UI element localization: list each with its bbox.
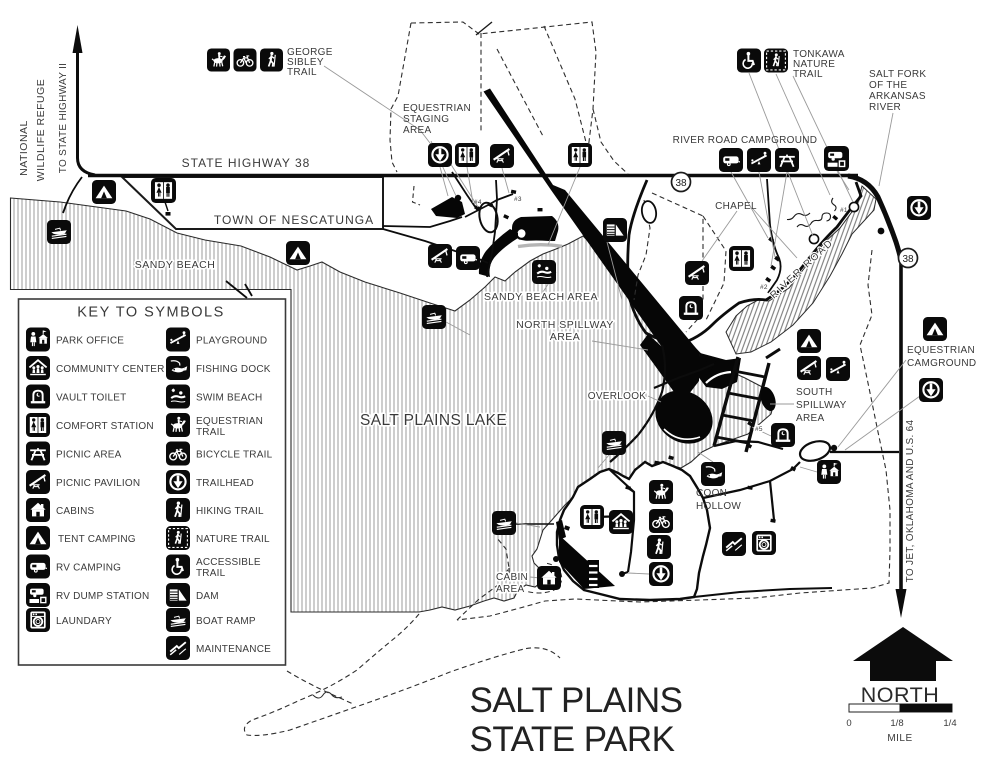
svg-text:COMMUNITY CENTER: COMMUNITY CENTER — [56, 364, 165, 375]
svg-text:PICNIC AREA: PICNIC AREA — [56, 450, 122, 461]
svg-text:SANDY BEACH: SANDY BEACH — [135, 259, 216, 271]
svg-text:SOUTH: SOUTH — [796, 387, 833, 398]
svg-text:MILE: MILE — [887, 733, 912, 744]
svg-text:CHAPEL: CHAPEL — [715, 201, 757, 212]
svg-text:SALT PLAINS LAKE: SALT PLAINS LAKE — [360, 412, 507, 429]
svg-text:MAINTENANCE: MAINTENANCE — [196, 644, 271, 655]
svg-text:#3: #3 — [514, 196, 522, 203]
svg-text:STAGING: STAGING — [403, 114, 449, 125]
svg-text:ARKANSAS: ARKANSAS — [869, 91, 926, 102]
svg-text:AREA: AREA — [403, 125, 431, 136]
svg-text:1/4: 1/4 — [943, 718, 956, 729]
svg-text:LAUNDARY: LAUNDARY — [56, 616, 112, 627]
svg-text:NORTH SPILLWAY: NORTH SPILLWAY — [516, 319, 614, 331]
svg-text:AREA: AREA — [550, 331, 581, 343]
svg-text:PICNIC PAVILION: PICNIC PAVILION — [56, 478, 140, 489]
svg-text:AREA: AREA — [796, 413, 824, 424]
svg-text:1/8: 1/8 — [890, 718, 903, 729]
svg-text:TO STATE HIGHWAY II: TO STATE HIGHWAY II — [58, 63, 69, 174]
svg-text:BICYCLE TRAIL: BICYCLE TRAIL — [196, 450, 273, 461]
svg-text:CABIN: CABIN — [496, 572, 528, 583]
svg-text:#5: #5 — [755, 426, 763, 433]
svg-text:RIVER ROAD CAMPGROUND: RIVER ROAD CAMPGROUND — [673, 135, 818, 146]
svg-text:SALT PLAINS: SALT PLAINS — [469, 681, 682, 720]
svg-text:RV DUMP STATION: RV DUMP STATION — [56, 591, 149, 602]
svg-text:FISHING DOCK: FISHING DOCK — [196, 364, 271, 375]
svg-text:EQUESTRIAN: EQUESTRIAN — [196, 416, 263, 427]
svg-text:TRAILHEAD: TRAILHEAD — [196, 478, 254, 489]
svg-text:#4: #4 — [474, 199, 482, 206]
svg-text:HOLLOW: HOLLOW — [696, 501, 741, 512]
svg-text:WILDLIFE REFUGE: WILDLIFE REFUGE — [35, 79, 47, 182]
svg-text:EQUESTRIAN: EQUESTRIAN — [907, 345, 975, 356]
svg-text:STATE HIGHWAY 38: STATE HIGHWAY 38 — [182, 156, 311, 170]
svg-text:COON: COON — [696, 488, 727, 499]
svg-text:CABINS: CABINS — [56, 506, 95, 517]
svg-text:ACCESSIBLE: ACCESSIBLE — [196, 557, 261, 568]
svg-text:SWIM BEACH: SWIM BEACH — [196, 393, 262, 404]
svg-text:BOAT RAMP: BOAT RAMP — [196, 616, 256, 627]
svg-text:TRAIL: TRAIL — [196, 568, 226, 579]
svg-text:STATE PARK: STATE PARK — [469, 720, 674, 759]
svg-text:AREA: AREA — [496, 584, 524, 595]
svg-text:TRAIL: TRAIL — [793, 69, 823, 80]
svg-text:OVERLOOK: OVERLOOK — [588, 391, 647, 402]
svg-text:TRAIL: TRAIL — [196, 427, 226, 438]
svg-text:#2: #2 — [760, 284, 768, 291]
svg-text:KEY TO SYMBOLS: KEY TO SYMBOLS — [77, 305, 225, 321]
svg-text:COMFORT STATION: COMFORT STATION — [56, 421, 154, 432]
svg-text:PLAYGROUND: PLAYGROUND — [196, 336, 267, 347]
svg-text:OF THE: OF THE — [869, 80, 907, 91]
svg-text:TENT CAMPING: TENT CAMPING — [58, 534, 136, 545]
svg-text:TOWN OF NESCATUNGA: TOWN OF NESCATUNGA — [214, 213, 374, 227]
svg-text:RIVER: RIVER — [869, 102, 901, 113]
svg-text:SANDY BEACH AREA: SANDY BEACH AREA — [484, 291, 598, 303]
svg-text:EQUESTRIAN: EQUESTRIAN — [403, 103, 471, 114]
svg-text:PARK OFFICE: PARK OFFICE — [56, 336, 124, 347]
svg-text:38: 38 — [675, 178, 687, 189]
svg-text:DAM: DAM — [196, 591, 219, 602]
svg-text:SPILLWAY: SPILLWAY — [796, 400, 847, 411]
svg-text:NATIONAL: NATIONAL — [18, 120, 30, 176]
svg-text:TO JET, OKLAHOMA AND U.S. 64: TO JET, OKLAHOMA AND U.S. 64 — [905, 420, 916, 583]
svg-text:NATURE TRAIL: NATURE TRAIL — [196, 534, 270, 545]
svg-text:38: 38 — [902, 254, 914, 265]
svg-text:VAULT TOILET: VAULT TOILET — [56, 393, 126, 404]
svg-text:CAMGROUND: CAMGROUND — [907, 358, 976, 369]
svg-text:SALT FORK: SALT FORK — [869, 69, 926, 80]
svg-text:#1: #1 — [840, 207, 848, 214]
svg-text:NORTH: NORTH — [861, 683, 940, 707]
svg-text:0: 0 — [846, 718, 851, 729]
svg-text:RV CAMPING: RV CAMPING — [56, 563, 121, 574]
svg-text:HIKING TRAIL: HIKING TRAIL — [196, 506, 264, 517]
svg-text:TRAIL: TRAIL — [287, 67, 317, 78]
